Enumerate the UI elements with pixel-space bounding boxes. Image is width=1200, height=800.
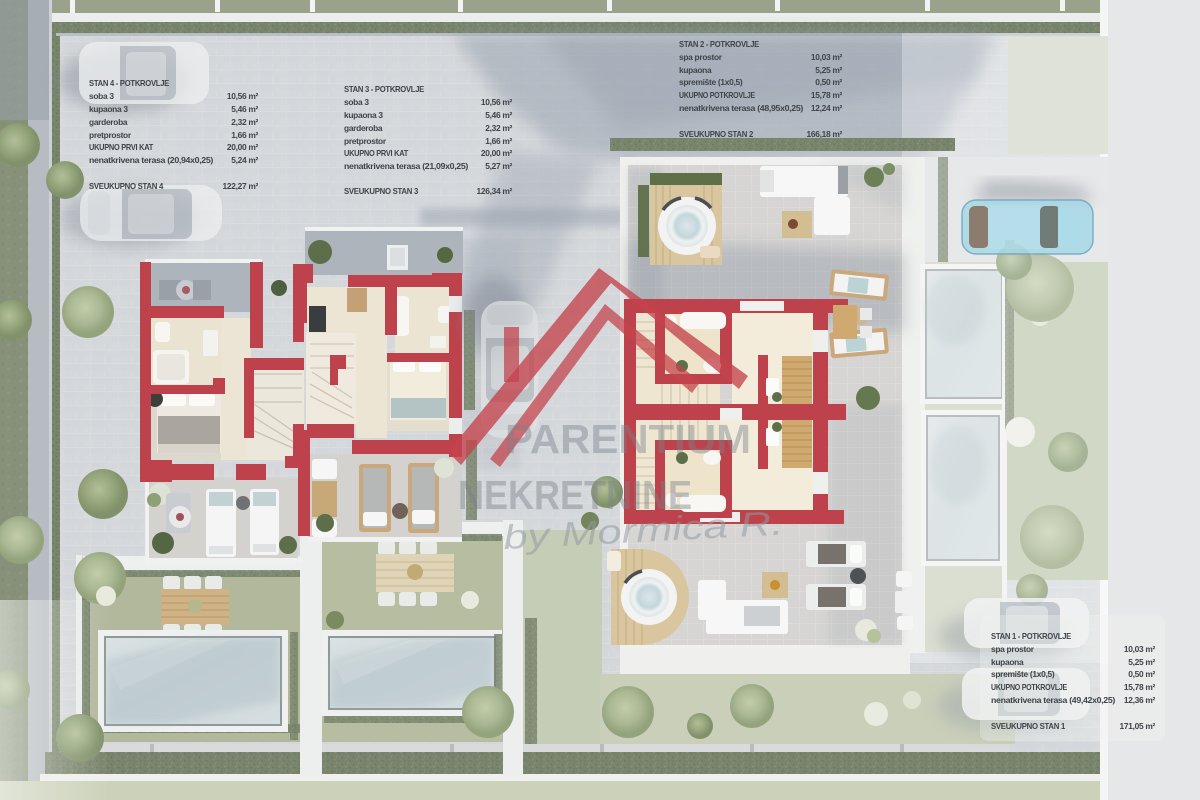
svg-text:5,25 m²: 5,25 m² xyxy=(815,65,842,75)
svg-text:kupaona 3: kupaona 3 xyxy=(89,104,128,114)
svg-text:SVEUKUPNO STAN 2: SVEUKUPNO STAN 2 xyxy=(679,129,754,139)
svg-text:10,56 m²: 10,56 m² xyxy=(481,97,513,107)
svg-text:pretprostor: pretprostor xyxy=(344,136,387,146)
svg-text:pretprostor: pretprostor xyxy=(89,130,132,140)
svg-text:PARENTIUM: PARENTIUM xyxy=(505,416,751,462)
svg-text:1,66 m²: 1,66 m² xyxy=(231,130,258,140)
svg-text:12,36 m²: 12,36 m² xyxy=(1124,695,1156,705)
svg-text:10,03 m²: 10,03 m² xyxy=(811,52,843,62)
svg-text:SVEUKUPNO STAN 3: SVEUKUPNO STAN 3 xyxy=(344,186,419,196)
svg-text:UKUPNO PRVI KAT: UKUPNO PRVI KAT xyxy=(344,148,409,158)
svg-text:STAN 2 - POTKROVLJE: STAN 2 - POTKROVLJE xyxy=(679,39,760,49)
svg-text:SVEUKUPNO STAN 4: SVEUKUPNO STAN 4 xyxy=(89,181,164,191)
svg-text:0,50 m²: 0,50 m² xyxy=(1128,669,1155,679)
svg-text:126,34 m²: 126,34 m² xyxy=(477,186,513,196)
svg-text:5,25 m²: 5,25 m² xyxy=(1128,657,1155,667)
svg-text:171,05 m²: 171,05 m² xyxy=(1120,721,1156,731)
svg-text:SVEUKUPNO STAN 1: SVEUKUPNO STAN 1 xyxy=(991,721,1066,731)
svg-text:5,24 m²: 5,24 m² xyxy=(231,155,258,165)
svg-text:nenatkrivena terasa (21,09x0,: nenatkrivena terasa (21,09x0,25) xyxy=(344,162,469,171)
svg-text:garderoba: garderoba xyxy=(344,123,383,133)
svg-text:10,56 m²: 10,56 m² xyxy=(227,91,259,101)
svg-text:nenatkrivena terasa (48,95x0,: nenatkrivena terasa (48,95x0,25) xyxy=(679,104,804,113)
svg-text:2,32 m²: 2,32 m² xyxy=(231,117,258,127)
svg-text:5,46 m²: 5,46 m² xyxy=(231,104,258,114)
svg-text:kupaona: kupaona xyxy=(991,657,1024,667)
svg-text:2,32 m²: 2,32 m² xyxy=(485,123,512,133)
svg-text:kupaona: kupaona xyxy=(679,65,712,75)
svg-text:nenatkrivena terasa (20,94x0,: nenatkrivena terasa (20,94x0,25) xyxy=(89,156,214,165)
svg-text:spa prostor: spa prostor xyxy=(991,644,1035,654)
svg-text:nenatkrivena terasa (49,42x0,: nenatkrivena terasa (49,42x0,25) xyxy=(991,696,1116,705)
svg-text:spa prostor: spa prostor xyxy=(679,52,723,62)
svg-text:spremište (1x0,5): spremište (1x0,5) xyxy=(679,77,743,87)
svg-text:20,00 m²: 20,00 m² xyxy=(227,142,259,152)
svg-text:20,00 m²: 20,00 m² xyxy=(481,148,513,158)
svg-text:UKUPNO POTKROVLJE: UKUPNO POTKROVLJE xyxy=(679,90,756,100)
svg-text:1,66 m²: 1,66 m² xyxy=(485,136,512,146)
svg-text:15,78 m²: 15,78 m² xyxy=(811,90,843,100)
svg-text:spremište (1x0,5): spremište (1x0,5) xyxy=(991,669,1055,679)
svg-text:UKUPNO PRVI KAT: UKUPNO PRVI KAT xyxy=(89,142,154,152)
svg-text:122,27 m²: 122,27 m² xyxy=(223,181,259,191)
svg-text:STAN 1 - POTKROVLJE: STAN 1 - POTKROVLJE xyxy=(991,631,1072,641)
svg-text:kupaona 3: kupaona 3 xyxy=(344,110,383,120)
svg-text:166,18 m²: 166,18 m² xyxy=(807,129,843,139)
svg-text:0,50 m²: 0,50 m² xyxy=(815,77,842,87)
svg-text:10,03 m²: 10,03 m² xyxy=(1124,644,1156,654)
svg-text:5,46 m²: 5,46 m² xyxy=(485,110,512,120)
svg-text:12,24 m²: 12,24 m² xyxy=(811,103,843,113)
svg-text:STAN 4 - POTKROVLJE: STAN 4 - POTKROVLJE xyxy=(89,78,170,88)
svg-text:15,78 m²: 15,78 m² xyxy=(1124,682,1156,692)
svg-text:garderoba: garderoba xyxy=(89,117,128,127)
svg-text:soba 3: soba 3 xyxy=(344,97,369,107)
svg-text:UKUPNO POTKROVLJE: UKUPNO POTKROVLJE xyxy=(991,682,1068,692)
svg-text:5,27 m²: 5,27 m² xyxy=(485,161,512,171)
svg-text:STAN 3 - POTKROVLJE: STAN 3 - POTKROVLJE xyxy=(344,84,425,94)
svg-text:soba 3: soba 3 xyxy=(89,91,114,101)
